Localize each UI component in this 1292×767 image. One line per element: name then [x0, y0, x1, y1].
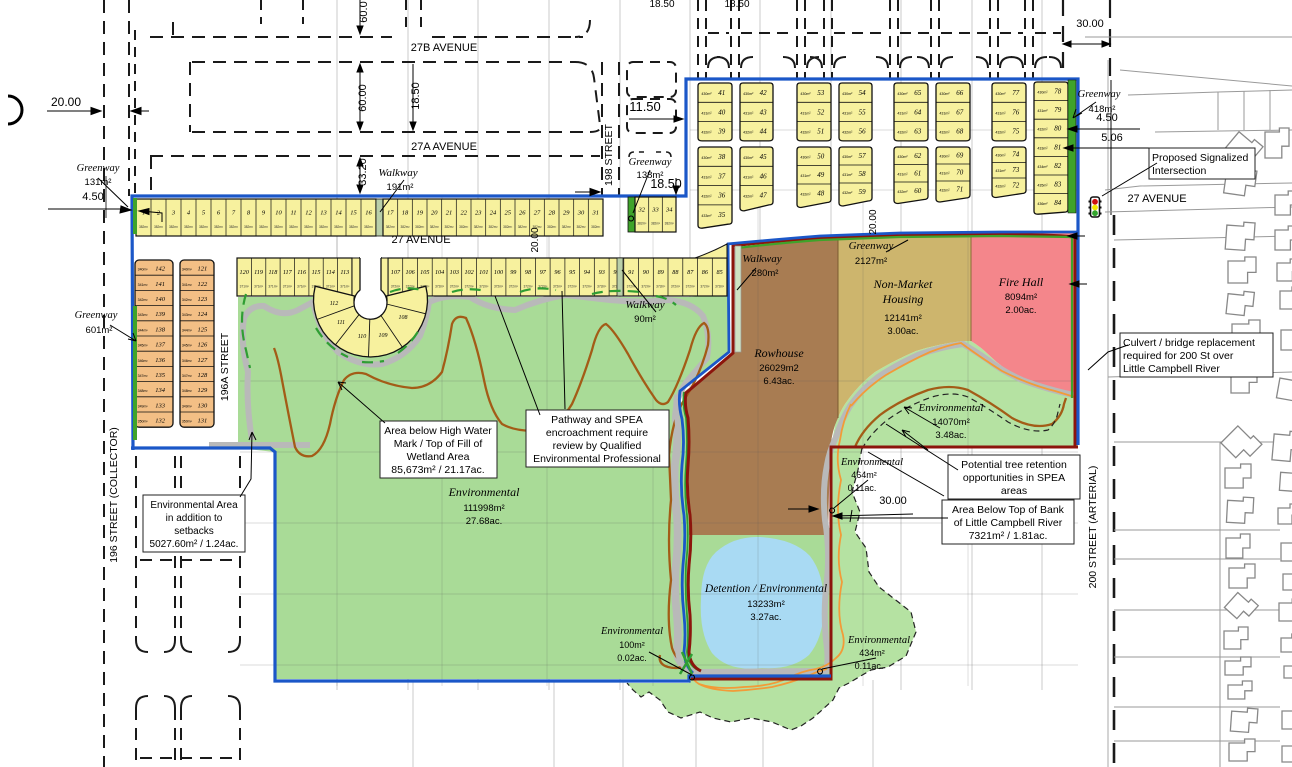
svg-text:26: 26: [519, 210, 526, 217]
svg-text:111: 111: [337, 320, 345, 326]
svg-text:120: 120: [240, 269, 250, 276]
svg-text:382m²: 382m²: [289, 225, 298, 229]
svg-text:382m²: 382m²: [139, 225, 148, 229]
svg-text:109: 109: [379, 333, 388, 339]
svg-text:12: 12: [305, 210, 312, 217]
svg-text:382m²: 382m²: [304, 225, 313, 229]
svg-text:18.50: 18.50: [410, 82, 422, 110]
svg-text:200 STREET (ARTERIAL): 200 STREET (ARTERIAL): [1087, 466, 1099, 589]
svg-text:434m²: 434m²: [859, 648, 885, 658]
svg-text:24: 24: [490, 210, 497, 217]
svg-text:432m²: 432m²: [743, 131, 754, 135]
svg-text:130: 130: [198, 402, 209, 409]
svg-text:372m²: 372m²: [686, 285, 695, 289]
svg-text:89: 89: [658, 269, 664, 276]
svg-text:116: 116: [297, 269, 307, 276]
svg-text:30: 30: [577, 210, 585, 217]
svg-text:13233m²: 13233m²: [747, 599, 785, 610]
svg-text:27 AVENUE: 27 AVENUE: [1127, 193, 1186, 205]
svg-text:35: 35: [717, 211, 726, 219]
svg-text:432m²: 432m²: [897, 190, 908, 194]
svg-text:137: 137: [155, 342, 166, 349]
svg-text:344m²: 344m²: [182, 328, 193, 332]
svg-text:required for 200 St over: required for 200 St over: [1123, 350, 1234, 362]
svg-text:3.27ac.: 3.27ac.: [750, 612, 781, 623]
svg-text:431m²: 431m²: [743, 111, 754, 115]
svg-text:20.00: 20.00: [868, 209, 879, 234]
svg-text:382m²: 382m²: [503, 225, 512, 229]
svg-text:431m²: 431m²: [897, 172, 908, 176]
svg-text:Greenway: Greenway: [77, 163, 120, 174]
svg-text:50: 50: [817, 153, 825, 161]
svg-text:5.06: 5.06: [1101, 132, 1122, 144]
svg-text:142: 142: [155, 266, 166, 273]
svg-text:40: 40: [718, 108, 726, 116]
svg-text:90m²: 90m²: [634, 314, 656, 325]
svg-text:98: 98: [525, 269, 532, 276]
svg-text:11: 11: [290, 210, 296, 217]
svg-text:382m²: 382m²: [430, 225, 439, 229]
svg-text:66: 66: [956, 89, 964, 97]
svg-text:6.43ac.: 6.43ac.: [763, 376, 794, 387]
svg-text:435m²: 435m²: [1037, 184, 1048, 188]
svg-text:430m²: 430m²: [1037, 91, 1048, 95]
svg-text:17: 17: [387, 210, 394, 217]
svg-text:382m²: 382m²: [169, 225, 178, 229]
svg-text:431m²: 431m²: [743, 175, 754, 179]
svg-text:382m²: 382m²: [665, 221, 674, 225]
svg-text:113: 113: [340, 269, 349, 276]
svg-text:14: 14: [335, 210, 342, 217]
svg-text:54: 54: [859, 89, 867, 97]
svg-text:114: 114: [326, 269, 335, 276]
svg-text:371m²: 371m²: [283, 285, 292, 289]
svg-text:431m²: 431m²: [842, 173, 853, 177]
svg-text:86: 86: [702, 269, 709, 276]
svg-text:Proposed Signalized: Proposed Signalized: [1152, 152, 1248, 164]
svg-text:371m²: 371m²: [340, 285, 349, 289]
svg-text:191m²: 191m²: [387, 182, 414, 193]
svg-text:418m²: 418m²: [1089, 104, 1116, 115]
svg-text:382m²: 382m²: [259, 225, 268, 229]
svg-text:124: 124: [198, 311, 209, 318]
svg-text:382m²: 382m²: [488, 225, 497, 229]
svg-text:3.00ac.: 3.00ac.: [887, 326, 918, 337]
svg-text:25: 25: [504, 210, 511, 217]
svg-text:70: 70: [956, 169, 964, 177]
svg-text:430m²: 430m²: [743, 156, 754, 160]
svg-text:464m²: 464m²: [851, 470, 877, 480]
svg-text:344m²: 344m²: [138, 328, 149, 332]
svg-text:382m²: 382m²: [637, 221, 646, 225]
svg-text:430m²: 430m²: [842, 155, 853, 159]
svg-text:18.50: 18.50: [724, 0, 749, 10]
svg-text:382m²: 382m²: [244, 225, 253, 229]
svg-text:34: 34: [665, 207, 673, 214]
svg-text:96: 96: [554, 269, 561, 276]
svg-text:18.50: 18.50: [649, 0, 674, 10]
svg-text:430m²: 430m²: [800, 156, 811, 160]
svg-text:30.00: 30.00: [1076, 18, 1104, 30]
svg-text:349m²: 349m²: [138, 404, 149, 408]
svg-text:27A AVENUE: 27A AVENUE: [411, 141, 477, 153]
svg-text:382m²: 382m²: [214, 225, 223, 229]
svg-text:29: 29: [563, 210, 570, 217]
svg-text:100m²: 100m²: [619, 640, 645, 650]
svg-text:13: 13: [320, 210, 327, 217]
svg-text:382m²: 382m²: [199, 225, 208, 229]
svg-text:198 STREET: 198 STREET: [603, 123, 615, 185]
svg-text:65: 65: [914, 89, 922, 97]
svg-text:45: 45: [760, 153, 768, 161]
svg-text:121: 121: [198, 266, 208, 273]
svg-text:55: 55: [859, 108, 867, 116]
svg-text:81: 81: [1054, 143, 1061, 151]
svg-text:372m²: 372m²: [509, 285, 518, 289]
svg-text:93: 93: [599, 269, 605, 276]
svg-text:Area below High Water: Area below High Water: [384, 425, 492, 437]
svg-text:84: 84: [1054, 199, 1062, 207]
svg-text:53: 53: [817, 89, 825, 97]
svg-text:372m²: 372m²: [479, 285, 488, 289]
svg-text:2127m²: 2127m²: [855, 256, 887, 267]
svg-text:encroachment require: encroachment require: [546, 427, 648, 439]
svg-text:75: 75: [1012, 128, 1020, 136]
svg-text:Non-Market: Non-Market: [873, 277, 933, 291]
svg-text:350m²: 350m²: [182, 420, 193, 424]
svg-text:372m²: 372m²: [641, 285, 650, 289]
svg-text:430m²: 430m²: [800, 92, 811, 96]
svg-text:88: 88: [672, 269, 679, 276]
svg-text:372m²: 372m²: [656, 285, 665, 289]
svg-text:430m²: 430m²: [701, 92, 712, 96]
svg-text:346m²: 346m²: [138, 359, 149, 363]
svg-text:48: 48: [817, 190, 825, 198]
svg-text:12141m²: 12141m²: [884, 313, 922, 324]
svg-text:111998m²: 111998m²: [463, 503, 504, 514]
svg-text:99: 99: [510, 269, 516, 276]
svg-text:64: 64: [914, 108, 922, 116]
svg-text:434m²: 434m²: [1037, 165, 1048, 169]
svg-text:27: 27: [534, 210, 541, 217]
svg-text:23: 23: [475, 210, 482, 217]
svg-text:91: 91: [628, 269, 634, 276]
svg-text:Wetland Area: Wetland Area: [407, 451, 470, 463]
svg-text:436m²: 436m²: [1037, 202, 1048, 206]
svg-text:38: 38: [717, 153, 726, 161]
svg-text:7321m² / 1.81ac.: 7321m² / 1.81ac.: [969, 530, 1048, 542]
svg-text:432m²: 432m²: [939, 189, 950, 193]
svg-text:431m²: 431m²: [897, 111, 908, 115]
svg-text:41: 41: [718, 89, 725, 97]
svg-text:433m²: 433m²: [701, 214, 712, 218]
svg-text:371m²: 371m²: [240, 285, 249, 289]
svg-text:Mark / Top of Fill of: Mark / Top of Fill of: [394, 438, 483, 450]
svg-text:346m²: 346m²: [182, 359, 193, 363]
svg-text:349m²: 349m²: [182, 404, 193, 408]
svg-text:431m²: 431m²: [995, 169, 1006, 173]
svg-text:122: 122: [198, 281, 209, 288]
svg-text:372m²: 372m²: [715, 285, 724, 289]
svg-text:37: 37: [717, 172, 726, 180]
svg-text:432m²: 432m²: [995, 185, 1006, 189]
svg-text:Detention / Environmental: Detention / Environmental: [704, 583, 827, 595]
svg-text:101: 101: [479, 269, 488, 276]
svg-text:371m²: 371m²: [326, 285, 335, 289]
svg-text:79: 79: [1054, 106, 1062, 114]
svg-text:432m²: 432m²: [800, 131, 811, 135]
svg-text:347m²: 347m²: [182, 374, 193, 378]
svg-text:11.50: 11.50: [629, 99, 661, 114]
svg-text:Greenway: Greenway: [75, 310, 118, 321]
svg-text:340m²: 340m²: [182, 268, 193, 272]
svg-text:32: 32: [638, 207, 646, 214]
svg-text:47: 47: [760, 192, 768, 200]
svg-text:76: 76: [1012, 108, 1020, 116]
svg-text:431m²: 431m²: [995, 111, 1006, 115]
svg-text:97: 97: [540, 269, 547, 276]
svg-text:69: 69: [956, 152, 964, 160]
svg-text:372m²: 372m²: [435, 285, 444, 289]
svg-text:Greenway: Greenway: [629, 157, 672, 168]
svg-text:341m²: 341m²: [138, 283, 149, 287]
svg-text:15: 15: [350, 210, 357, 217]
svg-text:372m²: 372m²: [494, 285, 503, 289]
svg-text:27B AVENUE: 27B AVENUE: [411, 42, 477, 54]
svg-text:372m²: 372m²: [568, 285, 577, 289]
svg-text:Environmental: Environmental: [918, 402, 984, 414]
svg-text:of Little Campbell River: of Little Campbell River: [954, 517, 1063, 529]
svg-text:382m²: 382m²: [547, 225, 556, 229]
svg-text:132: 132: [155, 418, 166, 425]
svg-text:431m²: 431m²: [800, 174, 811, 178]
svg-text:20.00: 20.00: [530, 227, 541, 252]
svg-text:382m²: 382m²: [386, 225, 395, 229]
svg-text:80: 80: [1054, 125, 1062, 133]
svg-text:46: 46: [760, 172, 768, 180]
svg-text:52: 52: [817, 108, 825, 116]
svg-text:20.00: 20.00: [51, 95, 81, 109]
svg-text:Walkway: Walkway: [378, 167, 417, 179]
svg-text:opportunities in SPEA: opportunities in SPEA: [963, 472, 1065, 484]
svg-text:382m²: 382m²: [334, 225, 343, 229]
svg-text:57: 57: [859, 152, 867, 160]
svg-text:Rowhouse: Rowhouse: [753, 346, 804, 360]
svg-text:63: 63: [914, 128, 922, 136]
svg-text:108: 108: [399, 315, 408, 321]
svg-text:49: 49: [817, 171, 825, 179]
svg-text:112: 112: [330, 301, 339, 307]
svg-text:77: 77: [1012, 89, 1020, 97]
svg-text:430m²: 430m²: [743, 92, 754, 96]
svg-text:138m²: 138m²: [637, 170, 664, 181]
svg-text:432m²: 432m²: [701, 195, 712, 199]
svg-text:432m²: 432m²: [995, 131, 1006, 135]
svg-text:94: 94: [584, 269, 590, 276]
svg-text:372m²: 372m²: [523, 285, 532, 289]
svg-text:107: 107: [391, 269, 401, 276]
svg-text:27 AVENUE: 27 AVENUE: [391, 234, 450, 246]
svg-text:382m²: 382m²: [576, 225, 585, 229]
svg-text:19: 19: [416, 210, 423, 217]
svg-text:432m²: 432m²: [897, 131, 908, 135]
svg-text:42: 42: [760, 89, 768, 97]
svg-text:432m²: 432m²: [701, 131, 712, 135]
svg-text:350m²: 350m²: [138, 420, 149, 424]
svg-text:Little Campbell River: Little Campbell River: [1123, 363, 1220, 375]
svg-text:2.00ac.: 2.00ac.: [1005, 305, 1036, 316]
svg-text:196A STREET: 196A STREET: [219, 332, 231, 401]
svg-text:119: 119: [254, 269, 263, 276]
svg-text:280m²: 280m²: [752, 268, 779, 279]
svg-text:22: 22: [460, 210, 467, 217]
svg-text:372m²: 372m²: [450, 285, 459, 289]
svg-text:372m²: 372m²: [553, 285, 562, 289]
svg-text:382m²: 382m²: [364, 225, 373, 229]
svg-text:126: 126: [198, 342, 209, 349]
svg-text:432m²: 432m²: [842, 191, 853, 195]
svg-text:342m²: 342m²: [182, 298, 193, 302]
svg-text:103: 103: [450, 269, 459, 276]
svg-text:26029m2: 26029m2: [759, 363, 799, 374]
svg-text:review by Qualified: review by Qualified: [553, 440, 642, 452]
svg-text:73: 73: [1012, 166, 1020, 174]
svg-text:141: 141: [155, 281, 165, 288]
svg-text:125: 125: [198, 326, 209, 333]
svg-text:4.50: 4.50: [82, 191, 103, 203]
svg-text:43: 43: [760, 108, 768, 116]
svg-text:430m²: 430m²: [701, 156, 712, 160]
svg-text:342m²: 342m²: [138, 298, 149, 302]
svg-text:371m²: 371m²: [268, 285, 277, 289]
svg-text:85: 85: [717, 269, 723, 276]
svg-text:118: 118: [268, 269, 278, 276]
svg-text:347m²: 347m²: [138, 374, 149, 378]
svg-text:Greenway: Greenway: [849, 240, 894, 252]
svg-text:432m²: 432m²: [1037, 128, 1048, 132]
svg-text:0.11ac.: 0.11ac.: [855, 661, 884, 671]
svg-text:68: 68: [956, 128, 964, 136]
svg-text:39: 39: [717, 128, 726, 136]
svg-text:Environmental Professional: Environmental Professional: [533, 453, 661, 465]
svg-text:133: 133: [155, 402, 166, 409]
svg-text:382m²: 382m²: [274, 225, 283, 229]
svg-text:372m²: 372m²: [700, 285, 709, 289]
svg-text:135: 135: [155, 372, 166, 379]
svg-text:Intersection: Intersection: [1152, 165, 1206, 177]
svg-text:105: 105: [420, 269, 429, 276]
svg-text:382m²: 382m²: [474, 225, 483, 229]
svg-text:117: 117: [283, 269, 293, 276]
svg-text:Environmental: Environmental: [847, 635, 910, 646]
svg-text:430m²: 430m²: [939, 155, 950, 159]
svg-text:430m²: 430m²: [939, 92, 950, 96]
svg-text:431m²: 431m²: [800, 111, 811, 115]
svg-text:Culvert / bridge replacement: Culvert / bridge replacement: [1123, 337, 1255, 349]
svg-text:430m²: 430m²: [995, 154, 1006, 158]
svg-text:in addition to: in addition to: [166, 513, 223, 524]
svg-text:343m²: 343m²: [182, 313, 193, 317]
svg-text:90: 90: [643, 269, 650, 276]
svg-text:5027.60m² / 1.24ac.: 5027.60m² / 1.24ac.: [150, 539, 239, 550]
svg-text:8094m²: 8094m²: [1005, 292, 1037, 303]
svg-text:Housing: Housing: [882, 292, 924, 306]
svg-text:131: 131: [198, 418, 208, 425]
svg-text:Environmental: Environmental: [600, 626, 663, 637]
svg-text:60.00: 60.00: [357, 84, 369, 112]
svg-text:372m²: 372m²: [671, 285, 680, 289]
svg-text:82: 82: [1054, 162, 1062, 170]
svg-text:102: 102: [464, 269, 473, 276]
svg-text:382m²: 382m²: [415, 225, 424, 229]
svg-text:431m²: 431m²: [939, 172, 950, 176]
svg-text:87: 87: [687, 269, 694, 276]
svg-text:44: 44: [760, 128, 768, 136]
svg-text:432m²: 432m²: [939, 131, 950, 135]
svg-text:340m²: 340m²: [138, 268, 149, 272]
svg-text:Potential tree retention: Potential tree retention: [961, 459, 1067, 471]
svg-text:61: 61: [914, 169, 921, 177]
svg-text:60: 60: [914, 187, 922, 195]
svg-text:30.00: 30.00: [879, 495, 907, 507]
svg-text:601m²: 601m²: [86, 325, 113, 336]
svg-text:372m²: 372m²: [391, 285, 400, 289]
svg-text:83: 83: [1054, 181, 1062, 189]
svg-text:432m²: 432m²: [743, 195, 754, 199]
svg-text:110: 110: [358, 334, 367, 340]
svg-text:62: 62: [914, 152, 922, 160]
svg-text:setbacks: setbacks: [174, 526, 213, 537]
svg-text:95: 95: [569, 269, 575, 276]
svg-text:345m²: 345m²: [138, 344, 149, 348]
svg-text:382m²: 382m²: [651, 221, 660, 225]
svg-text:382m²: 382m²: [591, 225, 600, 229]
svg-text:67: 67: [956, 108, 964, 116]
svg-text:Walkway: Walkway: [742, 253, 781, 265]
svg-text:129: 129: [198, 387, 209, 394]
svg-text:Environmental Area: Environmental Area: [150, 500, 238, 511]
svg-text:3.48ac.: 3.48ac.: [935, 430, 966, 441]
svg-text:348m²: 348m²: [182, 389, 193, 393]
svg-text:59: 59: [859, 188, 867, 196]
svg-text:28: 28: [548, 210, 555, 217]
svg-text:123: 123: [198, 296, 209, 303]
svg-text:71: 71: [956, 186, 963, 194]
svg-text:372m²: 372m²: [597, 285, 606, 289]
svg-text:382m²: 382m²: [229, 225, 238, 229]
svg-text:382m²: 382m²: [444, 225, 453, 229]
svg-text:10: 10: [275, 210, 282, 217]
svg-text:382m²: 382m²: [184, 225, 193, 229]
svg-text:56: 56: [859, 128, 867, 136]
svg-text:36: 36: [717, 192, 726, 200]
svg-text:431m²: 431m²: [842, 111, 853, 115]
svg-text:372m²: 372m²: [465, 285, 474, 289]
svg-text:85,673m² / 21.17ac.: 85,673m² / 21.17ac.: [391, 464, 484, 476]
svg-text:430m²: 430m²: [897, 155, 908, 159]
svg-text:51: 51: [817, 128, 824, 136]
svg-text:72: 72: [1012, 182, 1020, 190]
svg-text:74: 74: [1012, 151, 1020, 159]
svg-text:104: 104: [435, 269, 444, 276]
svg-text:Walkway: Walkway: [625, 299, 664, 311]
svg-text:140: 140: [155, 296, 166, 303]
svg-text:20: 20: [431, 210, 438, 217]
svg-text:371m²: 371m²: [297, 285, 306, 289]
svg-text:343m²: 343m²: [138, 313, 149, 317]
svg-text:138: 138: [155, 326, 166, 333]
svg-text:431m²: 431m²: [939, 111, 950, 115]
